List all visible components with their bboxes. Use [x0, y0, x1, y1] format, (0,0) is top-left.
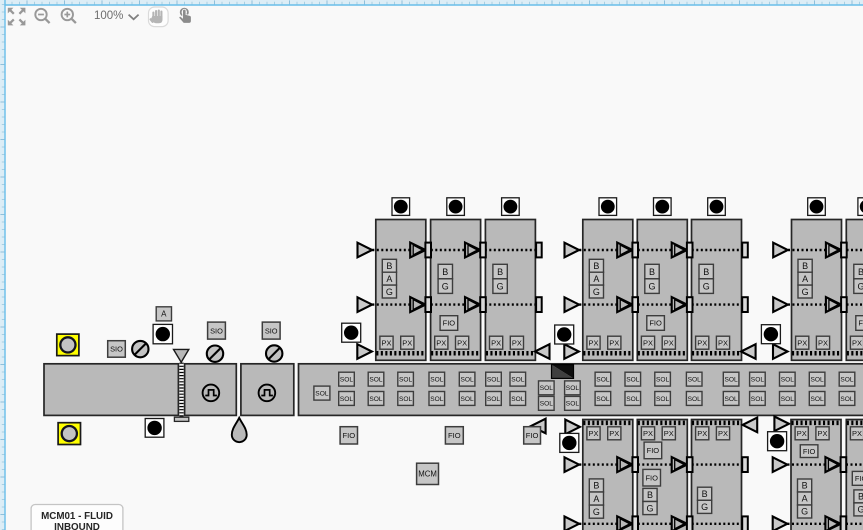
svg-text:B: B [702, 489, 708, 499]
svg-text:SOL: SOL [340, 377, 354, 384]
svg-text:B: B [593, 261, 599, 271]
svg-text:PX: PX [718, 338, 728, 347]
svg-text:SOL: SOL [540, 385, 554, 392]
svg-text:G: G [646, 503, 653, 513]
svg-text:PX: PX [852, 338, 862, 347]
svg-text:SOL: SOL [487, 396, 501, 403]
svg-text:SOL: SOL [810, 396, 824, 403]
svg-text:SOL: SOL [781, 396, 795, 403]
svg-text:G: G [857, 281, 863, 291]
svg-text:SOL: SOL [430, 396, 444, 403]
svg-text:G: G [648, 281, 655, 291]
svg-text:SOL: SOL [688, 396, 702, 403]
svg-text:PX: PX [491, 338, 501, 347]
svg-text:B: B [497, 267, 503, 277]
svg-text:PX: PX [697, 429, 707, 438]
svg-text:SOL: SOL [430, 377, 444, 384]
svg-text:SOL: SOL [688, 377, 702, 384]
svg-text:SOL: SOL [460, 396, 474, 403]
svg-text:A: A [802, 274, 808, 284]
svg-text:MCM: MCM [418, 470, 437, 479]
svg-text:SOL: SOL [724, 377, 738, 384]
svg-text:SOL: SOL [369, 377, 383, 384]
svg-text:SOL: SOL [566, 385, 580, 392]
svg-text:FIO: FIO [342, 431, 355, 440]
svg-text:FIO: FIO [645, 473, 658, 482]
svg-text:PX: PX [588, 338, 598, 347]
svg-text:SOL: SOL [781, 377, 795, 384]
svg-text:A: A [593, 494, 599, 504]
svg-text:SOL: SOL [840, 377, 854, 384]
svg-text:B: B [802, 261, 808, 271]
svg-text:G: G [442, 281, 449, 291]
svg-text:100%: 100% [94, 10, 123, 22]
svg-text:G: G [857, 505, 863, 515]
svg-text:SOL: SOL [399, 377, 413, 384]
svg-text:SOL: SOL [656, 396, 670, 403]
svg-text:SOL: SOL [460, 377, 474, 384]
svg-text:SOL: SOL [751, 396, 765, 403]
svg-text:PX: PX [664, 338, 674, 347]
svg-text:B: B [703, 267, 709, 277]
svg-text:B: B [649, 267, 655, 277]
svg-text:SIO: SIO [210, 326, 223, 335]
svg-text:SOL: SOL [596, 377, 610, 384]
svg-text:G: G [497, 281, 504, 291]
svg-text:FIO: FIO [649, 319, 662, 328]
svg-text:B: B [858, 492, 863, 502]
svg-text:SOL: SOL [566, 401, 580, 408]
svg-text:PX: PX [512, 338, 522, 347]
svg-text:SOL: SOL [626, 396, 640, 403]
svg-text:SOL: SOL [810, 377, 824, 384]
svg-text:PX: PX [643, 338, 653, 347]
svg-text:SOL: SOL [840, 396, 854, 403]
svg-text:PX: PX [852, 429, 862, 438]
svg-text:PX: PX [588, 429, 598, 438]
svg-text:A: A [802, 494, 808, 504]
svg-text:SOL: SOL [724, 396, 738, 403]
svg-text:MCM01 - FLUID: MCM01 - FLUID [41, 511, 113, 522]
svg-text:FIO: FIO [443, 319, 456, 328]
svg-text:PX: PX [643, 429, 653, 438]
svg-text:SOL: SOL [656, 377, 670, 384]
svg-text:PX: PX [402, 338, 412, 347]
svg-text:PX: PX [609, 338, 619, 347]
svg-text:SOL: SOL [626, 377, 640, 384]
svg-text:PX: PX [381, 338, 391, 347]
svg-text:PX: PX [436, 338, 446, 347]
svg-text:A: A [593, 274, 599, 284]
svg-text:PX: PX [697, 338, 707, 347]
svg-text:B: B [386, 261, 392, 271]
svg-text:G: G [802, 287, 809, 297]
svg-text:FIO: FIO [448, 431, 461, 440]
svg-text:PX: PX [457, 338, 467, 347]
svg-text:FIO: FIO [858, 319, 863, 328]
svg-text:PX: PX [609, 429, 619, 438]
svg-text:SOL: SOL [399, 396, 413, 403]
svg-text:A: A [386, 274, 392, 284]
svg-text:SIO: SIO [265, 326, 278, 335]
svg-text:SOL: SOL [315, 391, 329, 398]
svg-text:G: G [703, 281, 710, 291]
svg-text:SOL: SOL [369, 396, 383, 403]
svg-text:FIO: FIO [855, 474, 863, 483]
svg-text:B: B [442, 267, 448, 277]
svg-text:G: G [593, 507, 600, 517]
svg-text:PX: PX [797, 338, 807, 347]
svg-text:B: B [858, 267, 863, 277]
svg-text:G: G [801, 507, 808, 517]
svg-text:SOL: SOL [540, 401, 554, 408]
svg-text:B: B [802, 481, 808, 491]
svg-text:G: G [593, 287, 600, 297]
svg-text:G: G [701, 502, 708, 512]
svg-text:PX: PX [818, 338, 828, 347]
svg-text:B: B [647, 490, 653, 500]
svg-text:A: A [161, 310, 167, 319]
svg-text:SIO: SIO [110, 345, 123, 354]
svg-text:SOL: SOL [487, 377, 501, 384]
svg-text:FIO: FIO [526, 431, 539, 440]
svg-text:SOL: SOL [511, 396, 525, 403]
svg-text:PX: PX [797, 429, 807, 438]
svg-text:FIO: FIO [647, 446, 660, 455]
svg-text:PX: PX [718, 429, 728, 438]
svg-text:SOL: SOL [751, 377, 765, 384]
svg-text:PX: PX [664, 429, 674, 438]
svg-text:SOL: SOL [340, 396, 354, 403]
svg-text:INBOUND: INBOUND [54, 522, 100, 530]
svg-text:SOL: SOL [511, 377, 525, 384]
svg-text:PX: PX [817, 429, 827, 438]
svg-text:G: G [386, 287, 393, 297]
svg-text:B: B [593, 481, 599, 491]
svg-text:SOL: SOL [596, 396, 610, 403]
svg-text:FIO: FIO [803, 447, 816, 456]
